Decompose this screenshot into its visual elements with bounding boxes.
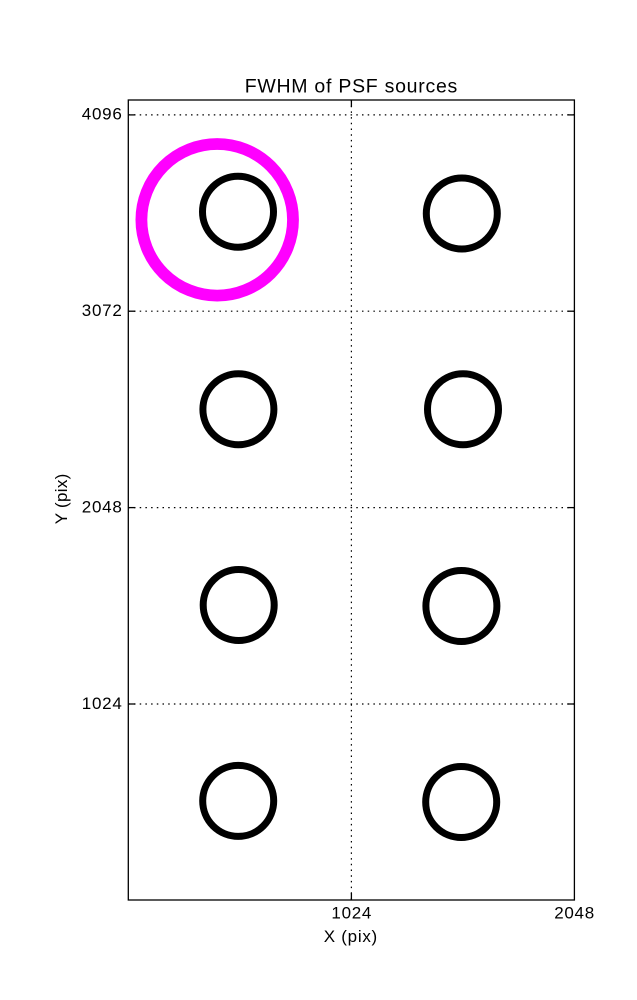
svg-text:2048: 2048 — [554, 904, 594, 923]
svg-text:4096: 4096 — [82, 105, 122, 124]
svg-text:2048: 2048 — [82, 497, 122, 516]
svg-text:3072: 3072 — [82, 301, 122, 320]
svg-text:FWHM of PSF sources: FWHM of PSF sources — [245, 76, 458, 98]
svg-text:X (pix): X (pix) — [324, 927, 377, 946]
svg-text:Y (pix): Y (pix) — [52, 474, 71, 525]
svg-text:1024: 1024 — [82, 694, 122, 713]
svg-text:1024: 1024 — [331, 904, 371, 923]
